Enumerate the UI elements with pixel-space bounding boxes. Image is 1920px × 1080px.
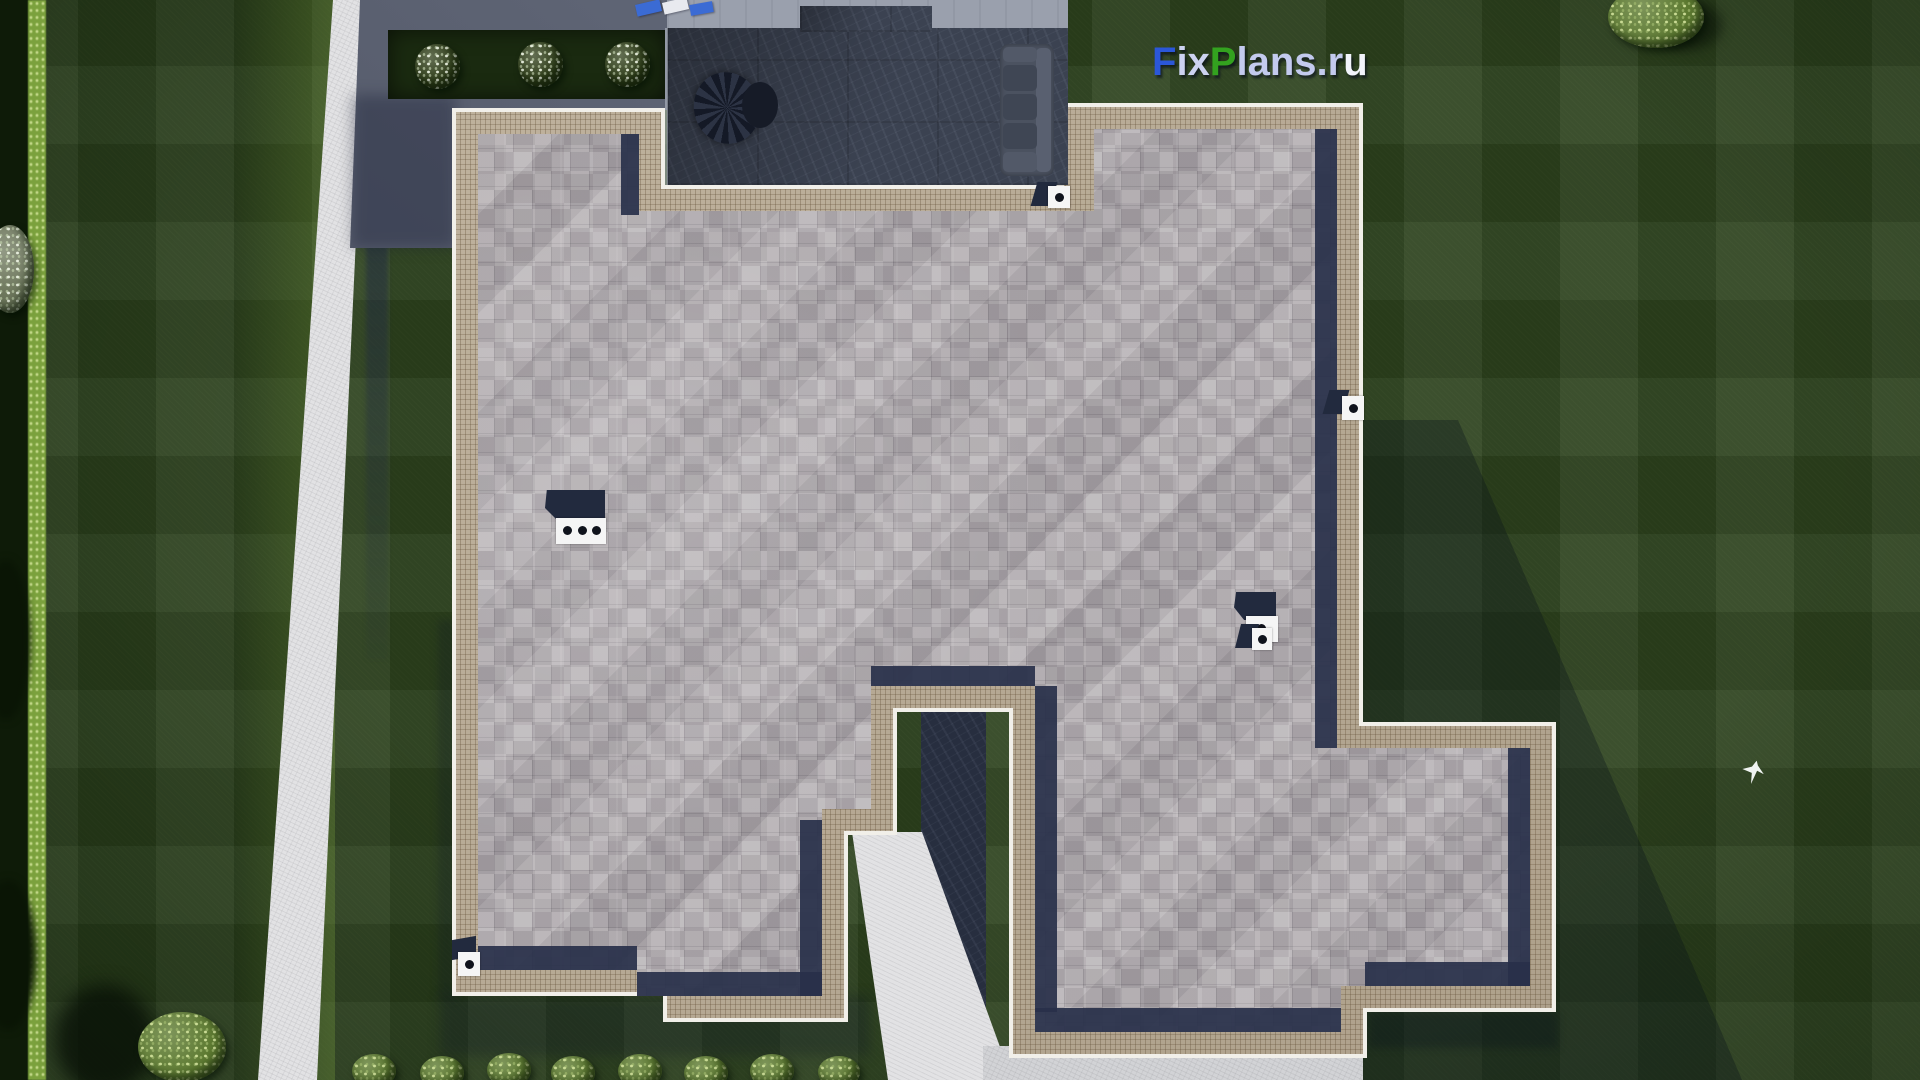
bush: [352, 1054, 396, 1080]
chimney-shadow: [0, 0, 1920, 1080]
chimney-top-face: [545, 490, 605, 520]
chimney-cap: [556, 518, 606, 544]
watermark-logo: FixPlans.ru: [1152, 40, 1368, 85]
watermark-part: F: [1152, 40, 1176, 84]
bush: [618, 1054, 662, 1080]
bush: [818, 1056, 860, 1080]
watermark-part: u: [1343, 40, 1367, 84]
roof-vent-icon: [1252, 628, 1272, 650]
watermark-part: lans.r: [1236, 40, 1343, 84]
aerial-render: FixPlans.ru: [0, 0, 1920, 1080]
bush: [750, 1054, 794, 1080]
bush: [487, 1053, 531, 1080]
roof-vent-icon: [1342, 396, 1364, 420]
watermark-part: P: [1210, 40, 1237, 84]
watermark-part: ix: [1176, 40, 1209, 84]
roof-vent-icon: [1048, 186, 1070, 208]
roof-vent-icon: [458, 952, 480, 976]
